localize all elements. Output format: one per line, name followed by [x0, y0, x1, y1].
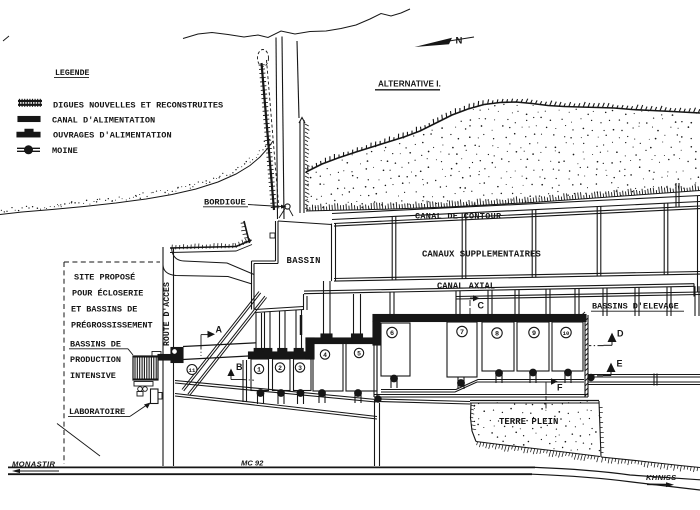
svg-text:E: E [617, 359, 623, 369]
svg-text:CANAL D'ALIMENTATION: CANAL D'ALIMENTATION [52, 116, 155, 126]
svg-text:A: A [216, 325, 223, 335]
svg-text:D: D [617, 329, 624, 339]
svg-text:F: F [557, 383, 563, 393]
svg-text:ROUTE D'ACCES: ROUTE D'ACCES [162, 282, 172, 346]
svg-text:C: C [478, 301, 485, 311]
svg-text:BASSINS D'ELEVAGE: BASSINS D'ELEVAGE [592, 302, 679, 312]
svg-text:10: 10 [563, 330, 570, 337]
svg-text:2: 2 [278, 365, 282, 372]
svg-text:9: 9 [532, 330, 536, 338]
svg-text:LABORATOIRE: LABORATOIRE [69, 407, 125, 417]
svg-text:5: 5 [357, 350, 361, 357]
svg-text:8: 8 [495, 331, 499, 339]
svg-text:POUR ÉCLOSERIE: POUR ÉCLOSERIE [72, 288, 143, 299]
svg-text:3: 3 [298, 365, 302, 372]
svg-text:LEGENDE: LEGENDE [55, 69, 89, 78]
svg-text:OUVRAGES D'ALIMENTATION: OUVRAGES D'ALIMENTATION [53, 131, 172, 141]
svg-text:7: 7 [460, 329, 464, 337]
svg-text:MC 92: MC 92 [241, 459, 264, 468]
svg-text:PRÉGROSSISSEMENT: PRÉGROSSISSEMENT [71, 320, 153, 331]
svg-text:N: N [456, 36, 463, 47]
svg-text:4: 4 [323, 352, 327, 359]
svg-text:CANAL AXIAL: CANAL AXIAL [437, 282, 495, 292]
svg-text:BORDIGUE: BORDIGUE [204, 198, 246, 208]
svg-text:INTENSIVE: INTENSIVE [70, 371, 116, 381]
svg-text:1: 1 [257, 366, 261, 373]
svg-text:ALTERNATIVE I.: ALTERNATIVE I. [378, 80, 441, 89]
svg-text:6: 6 [390, 330, 394, 338]
svg-text:BASSINS DE: BASSINS DE [70, 340, 121, 350]
svg-text:ET BASSINS DE: ET BASSINS DE [71, 305, 137, 315]
svg-text:SITE PROPOSÉ: SITE PROPOSÉ [74, 272, 135, 283]
svg-text:PRODUCTION: PRODUCTION [70, 355, 121, 365]
svg-text:11: 11 [189, 367, 196, 374]
svg-text:BASSIN: BASSIN [287, 256, 321, 266]
svg-text:CANAUX SUPPLEMENTAIRES: CANAUX SUPPLEMENTAIRES [422, 250, 541, 260]
svg-text:KHNISS: KHNISS [646, 473, 677, 482]
svg-text:MONASTIR: MONASTIR [12, 460, 55, 469]
svg-text:MOINE: MOINE [52, 146, 78, 156]
svg-text:B: B [236, 362, 243, 372]
svg-text:TERRE PLEIN: TERRE PLEIN [499, 417, 558, 427]
svg-text:DIGUES NOUVELLES ET RECONSTRUI: DIGUES NOUVELLES ET RECONSTRUITES [53, 101, 223, 111]
